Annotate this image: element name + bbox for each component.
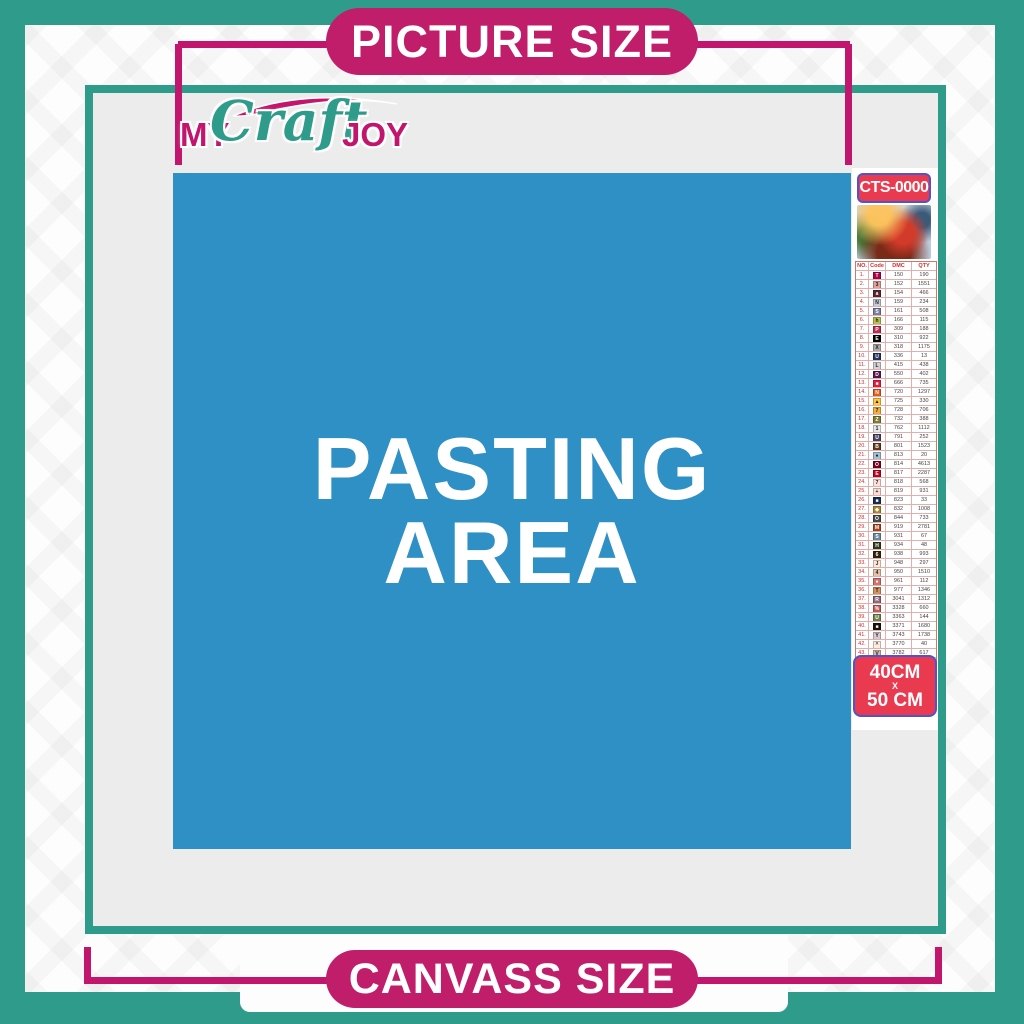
- col-no: 1.: [856, 271, 869, 279]
- code-swatch: ■: [873, 497, 882, 504]
- col-code: +: [869, 487, 886, 495]
- col-qty: 1297: [912, 388, 936, 396]
- code-swatch: O: [873, 515, 882, 522]
- col-no: 11.: [856, 361, 869, 369]
- col-code: h: [869, 316, 886, 324]
- product-graphic: PASTING AREA MY Craft JOY CTS-0000 NO. C…: [0, 0, 1024, 1024]
- table-row: 6. h 166 115: [856, 316, 936, 325]
- col-dmc: 931: [886, 532, 912, 540]
- col-dmc: 819: [886, 487, 912, 495]
- col-qty: 1175: [912, 343, 936, 351]
- header-dmc: DMC: [886, 262, 912, 270]
- col-qty: 330: [912, 397, 936, 405]
- col-qty: 931: [912, 487, 936, 495]
- col-code: 1: [869, 424, 886, 432]
- col-qty: 438: [912, 361, 936, 369]
- col-code: D: [869, 370, 886, 378]
- col-dmc: 3743: [886, 631, 912, 639]
- col-qty: 40: [912, 640, 936, 648]
- col-dmc: 948: [886, 559, 912, 567]
- col-dmc: 161: [886, 307, 912, 315]
- table-row: 15. ▲ 725 330: [856, 397, 936, 406]
- table-row: 5. S 161 508: [856, 307, 936, 316]
- col-no: 27.: [856, 505, 869, 513]
- col-no: 35.: [856, 577, 869, 585]
- col-dmc: 823: [886, 496, 912, 504]
- col-qty: 252: [912, 433, 936, 441]
- col-qty: 568: [912, 478, 936, 486]
- col-qty: 388: [912, 415, 936, 423]
- col-no: 6.: [856, 316, 869, 324]
- col-code: 6: [869, 550, 886, 558]
- col-no: 5.: [856, 307, 869, 315]
- col-code: ●: [869, 577, 886, 585]
- col-dmc: 813: [886, 451, 912, 459]
- col-code: U: [869, 613, 886, 621]
- col-dmc: 934: [886, 541, 912, 549]
- col-no: 10.: [856, 352, 869, 360]
- table-row: 9. X 318 1175: [856, 343, 936, 352]
- col-no: 4.: [856, 298, 869, 306]
- col-dmc: 336: [886, 352, 912, 360]
- col-code: ●: [869, 451, 886, 459]
- col-no: 39.: [856, 613, 869, 621]
- brand-logo: MY Craft JOY: [176, 92, 414, 174]
- table-row: 13. ■ 666 735: [856, 379, 936, 388]
- col-dmc: 152: [886, 280, 912, 288]
- col-qty: 733: [912, 514, 936, 522]
- col-dmc: 3363: [886, 613, 912, 621]
- canvas-size-bracket-left-tick: [84, 947, 91, 984]
- code-swatch: ●: [873, 578, 882, 585]
- col-qty: 1551: [912, 280, 936, 288]
- col-qty: 188: [912, 325, 936, 333]
- table-row: 39. U 3363 144: [856, 613, 936, 622]
- col-no: 13.: [856, 379, 869, 387]
- col-qty: 1680: [912, 622, 936, 630]
- product-code-badge: CTS-0000: [857, 173, 931, 203]
- table-row: 7. P 309 188: [856, 325, 936, 334]
- code-swatch: T: [873, 272, 882, 279]
- logo-word-joy: JOY: [342, 116, 408, 154]
- table-header-row: NO. Code DMC QTY: [856, 262, 936, 271]
- code-swatch: E: [873, 335, 882, 342]
- table-row: 1. T 150 190: [856, 271, 936, 280]
- col-dmc: 150: [886, 271, 912, 279]
- col-no: 28.: [856, 514, 869, 522]
- size-badge-width: 40CM: [870, 663, 921, 682]
- code-swatch: +: [873, 488, 882, 495]
- table-row: 41. Y 3743 1738: [856, 631, 936, 640]
- col-no: 31.: [856, 541, 869, 549]
- code-swatch: O: [873, 461, 882, 468]
- size-badge-height: 50 CM: [867, 691, 923, 710]
- col-no: 17.: [856, 415, 869, 423]
- code-swatch: S: [873, 533, 882, 540]
- col-code: O: [869, 460, 886, 468]
- col-code: S: [869, 307, 886, 315]
- col-no: 34.: [856, 568, 869, 576]
- dmc-color-table: NO. Code DMC QTY 1. T 150 190 2. 3 152 1…: [855, 261, 937, 703]
- table-row: 38. % 3328 660: [856, 604, 936, 613]
- col-dmc: 720: [886, 388, 912, 396]
- code-swatch: M: [873, 524, 882, 531]
- table-row: 34. 4 950 1510: [856, 568, 936, 577]
- col-code: X: [869, 343, 886, 351]
- table-row: 21. ● 813 20: [856, 451, 936, 460]
- col-code: R: [869, 595, 886, 603]
- code-swatch: T: [873, 587, 882, 594]
- table-row: 42. ^ 3770 40: [856, 640, 936, 649]
- col-dmc: 3770: [886, 640, 912, 648]
- code-swatch: R: [873, 596, 882, 603]
- col-no: 26.: [856, 496, 869, 504]
- table-row: 4. N 159 234: [856, 298, 936, 307]
- table-row: 10. U 336 13: [856, 352, 936, 361]
- col-dmc: 309: [886, 325, 912, 333]
- col-qty: 1510: [912, 568, 936, 576]
- col-no: 7.: [856, 325, 869, 333]
- col-no: 25.: [856, 487, 869, 495]
- pasting-area-label-line2: AREA: [383, 511, 640, 595]
- col-no: 41.: [856, 631, 869, 639]
- header-no: NO.: [856, 262, 869, 270]
- code-swatch: %: [873, 605, 882, 612]
- col-code: Z: [869, 415, 886, 423]
- code-swatch: S: [873, 308, 882, 315]
- col-code: 7: [869, 406, 886, 414]
- table-row: 32. 6 938 993: [856, 550, 936, 559]
- col-qty: 67: [912, 532, 936, 540]
- col-no: 2.: [856, 280, 869, 288]
- table-row: 20. B 801 1523: [856, 442, 936, 451]
- col-dmc: 154: [886, 289, 912, 297]
- code-swatch: U: [873, 614, 882, 621]
- legend-sidebar: CTS-0000 NO. Code DMC QTY 1. T 150 190 2…: [852, 168, 938, 730]
- col-dmc: 732: [886, 415, 912, 423]
- col-dmc: 166: [886, 316, 912, 324]
- table-row: 33. J 948 297: [856, 559, 936, 568]
- code-swatch: h: [873, 317, 882, 324]
- col-no: 14.: [856, 388, 869, 396]
- col-no: 9.: [856, 343, 869, 351]
- code-swatch: ●: [873, 452, 882, 459]
- col-code: E: [869, 334, 886, 342]
- table-row: 18. 1 762 1112: [856, 424, 936, 433]
- col-code: ▲: [869, 397, 886, 405]
- col-dmc: 938: [886, 550, 912, 558]
- col-code: %: [869, 604, 886, 612]
- table-row: 36. T 977 1346: [856, 586, 936, 595]
- code-swatch: a: [873, 290, 882, 297]
- col-dmc: 817: [886, 469, 912, 477]
- table-row: 22. O 814 4613: [856, 460, 936, 469]
- code-swatch: J: [873, 560, 882, 567]
- col-dmc: 919: [886, 523, 912, 531]
- col-code: 3: [869, 280, 886, 288]
- pasting-area: PASTING AREA: [173, 173, 851, 849]
- header-code: Code: [869, 262, 886, 270]
- col-dmc: 550: [886, 370, 912, 378]
- col-code: E: [869, 469, 886, 477]
- col-qty: 660: [912, 604, 936, 612]
- dmc-table-body: 1. T 150 190 2. 3 152 1551 3. a 154 466 …: [856, 271, 936, 702]
- col-no: 30.: [856, 532, 869, 540]
- col-code: T: [869, 586, 886, 594]
- col-dmc: 844: [886, 514, 912, 522]
- col-no: 23.: [856, 469, 869, 477]
- code-swatch: X: [873, 344, 882, 351]
- col-code: J: [869, 559, 886, 567]
- col-dmc: 801: [886, 442, 912, 450]
- col-no: 33.: [856, 559, 869, 567]
- table-row: 8. E 310 922: [856, 334, 936, 343]
- col-code: ■: [869, 496, 886, 504]
- col-no: 12.: [856, 370, 869, 378]
- code-swatch: E: [873, 470, 882, 477]
- col-no: 21.: [856, 451, 869, 459]
- col-no: 16.: [856, 406, 869, 414]
- code-swatch: ■: [873, 380, 882, 387]
- col-dmc: 666: [886, 379, 912, 387]
- col-no: 36.: [856, 586, 869, 594]
- col-qty: 922: [912, 334, 936, 342]
- code-swatch: N: [873, 299, 882, 306]
- table-row: 12. D 550 402: [856, 370, 936, 379]
- col-dmc: 310: [886, 334, 912, 342]
- col-qty: 466: [912, 289, 936, 297]
- col-no: 20.: [856, 442, 869, 450]
- table-row: 28. O 844 733: [856, 514, 936, 523]
- col-qty: 48: [912, 541, 936, 549]
- col-no: 42.: [856, 640, 869, 648]
- col-qty: 1312: [912, 595, 936, 603]
- code-swatch: 7: [873, 407, 882, 414]
- col-code: 7: [869, 478, 886, 486]
- col-qty: 1112: [912, 424, 936, 432]
- col-no: 37.: [856, 595, 869, 603]
- col-no: 40.: [856, 622, 869, 630]
- pasting-area-label-line1: PASTING: [313, 427, 712, 511]
- col-dmc: 3041: [886, 595, 912, 603]
- col-no: 18.: [856, 424, 869, 432]
- col-code: ^: [869, 640, 886, 648]
- col-dmc: 814: [886, 460, 912, 468]
- col-dmc: 318: [886, 343, 912, 351]
- col-no: 32.: [856, 550, 869, 558]
- col-qty: 706: [912, 406, 936, 414]
- col-dmc: 3371: [886, 622, 912, 630]
- table-row: 27. ◆ 832 1008: [856, 505, 936, 514]
- code-swatch: ■: [873, 623, 882, 630]
- table-row: 11. L 415 438: [856, 361, 936, 370]
- preview-thumbnail-image: [857, 205, 931, 259]
- table-row: 31. H 934 48: [856, 541, 936, 550]
- col-code: B: [869, 442, 886, 450]
- code-swatch: P: [873, 326, 882, 333]
- table-row: 40. ■ 3371 1680: [856, 622, 936, 631]
- col-qty: 1346: [912, 586, 936, 594]
- col-no: 19.: [856, 433, 869, 441]
- canvass-size-banner: CANVASS SIZE: [326, 950, 698, 1008]
- col-qty: 190: [912, 271, 936, 279]
- col-code: O: [869, 514, 886, 522]
- table-row: 35. ● 961 112: [856, 577, 936, 586]
- col-no: 29.: [856, 523, 869, 531]
- col-qty: 735: [912, 379, 936, 387]
- col-qty: 297: [912, 559, 936, 567]
- picture-size-bracket-right-tick: [845, 44, 852, 165]
- code-swatch: 6: [873, 551, 882, 558]
- code-swatch: ◆: [873, 506, 882, 513]
- picture-size-banner: PICTURE SIZE: [326, 8, 698, 75]
- code-swatch: B: [873, 443, 882, 450]
- code-swatch: ^: [873, 641, 882, 648]
- col-dmc: 725: [886, 397, 912, 405]
- col-code: ■: [869, 622, 886, 630]
- col-qty: 1008: [912, 505, 936, 513]
- col-dmc: 762: [886, 424, 912, 432]
- col-code: U: [869, 352, 886, 360]
- col-qty: 144: [912, 613, 936, 621]
- code-swatch: ▲: [873, 398, 882, 405]
- col-qty: 1523: [912, 442, 936, 450]
- code-swatch: Z: [873, 416, 882, 423]
- table-row: 19. U 791 252: [856, 433, 936, 442]
- col-dmc: 415: [886, 361, 912, 369]
- col-code: U: [869, 433, 886, 441]
- col-code: N: [869, 298, 886, 306]
- col-code: ■: [869, 379, 886, 387]
- code-swatch: U: [873, 434, 882, 441]
- table-row: 29. M 919 2781: [856, 523, 936, 532]
- col-dmc: 728: [886, 406, 912, 414]
- col-code: T: [869, 271, 886, 279]
- col-qty: 402: [912, 370, 936, 378]
- code-swatch: 4: [873, 569, 882, 576]
- col-no: 38.: [856, 604, 869, 612]
- col-dmc: 791: [886, 433, 912, 441]
- code-swatch: Y: [873, 632, 882, 639]
- col-dmc: 961: [886, 577, 912, 585]
- col-no: 22.: [856, 460, 869, 468]
- code-swatch: 7: [873, 479, 882, 486]
- table-row: 26. ■ 823 33: [856, 496, 936, 505]
- col-code: a: [869, 289, 886, 297]
- col-qty: 508: [912, 307, 936, 315]
- table-row: 30. S 931 67: [856, 532, 936, 541]
- code-swatch: H: [873, 542, 882, 549]
- table-row: 37. R 3041 1312: [856, 595, 936, 604]
- col-qty: 13: [912, 352, 936, 360]
- canvas-size-bracket-right-tick: [935, 947, 942, 984]
- col-qty: 234: [912, 298, 936, 306]
- col-code: L: [869, 361, 886, 369]
- col-qty: 115: [912, 316, 936, 324]
- col-qty: 2287: [912, 469, 936, 477]
- code-swatch: 3: [873, 281, 882, 288]
- col-qty: 112: [912, 577, 936, 585]
- col-qty: 20: [912, 451, 936, 459]
- table-row: 24. 7 818 568: [856, 478, 936, 487]
- col-qty: 993: [912, 550, 936, 558]
- canvas-size-badge: 40CM X 50 CM: [853, 655, 937, 717]
- col-no: 8.: [856, 334, 869, 342]
- col-code: N: [869, 388, 886, 396]
- col-qty: 1738: [912, 631, 936, 639]
- col-qty: 2781: [912, 523, 936, 531]
- col-dmc: 950: [886, 568, 912, 576]
- col-qty: 4613: [912, 460, 936, 468]
- header-qty: QTY: [912, 262, 936, 270]
- col-dmc: 3328: [886, 604, 912, 612]
- code-swatch: 1: [873, 425, 882, 432]
- col-dmc: 832: [886, 505, 912, 513]
- col-qty: 33: [912, 496, 936, 504]
- col-code: H: [869, 541, 886, 549]
- table-row: 2. 3 152 1551: [856, 280, 936, 289]
- code-swatch: D: [873, 371, 882, 378]
- table-row: 23. E 817 2287: [856, 469, 936, 478]
- table-row: 3. a 154 466: [856, 289, 936, 298]
- table-row: 17. Z 732 388: [856, 415, 936, 424]
- col-no: 15.: [856, 397, 869, 405]
- col-dmc: 818: [886, 478, 912, 486]
- table-row: 25. + 819 931: [856, 487, 936, 496]
- col-code: ◆: [869, 505, 886, 513]
- col-no: 24.: [856, 478, 869, 486]
- col-code: 4: [869, 568, 886, 576]
- code-swatch: U: [873, 353, 882, 360]
- table-row: 16. 7 728 706: [856, 406, 936, 415]
- col-code: P: [869, 325, 886, 333]
- col-code: S: [869, 532, 886, 540]
- col-no: 3.: [856, 289, 869, 297]
- col-dmc: 977: [886, 586, 912, 594]
- table-row: 14. N 720 1297: [856, 388, 936, 397]
- col-dmc: 159: [886, 298, 912, 306]
- col-code: M: [869, 523, 886, 531]
- code-swatch: L: [873, 362, 882, 369]
- col-code: Y: [869, 631, 886, 639]
- code-swatch: N: [873, 389, 882, 396]
